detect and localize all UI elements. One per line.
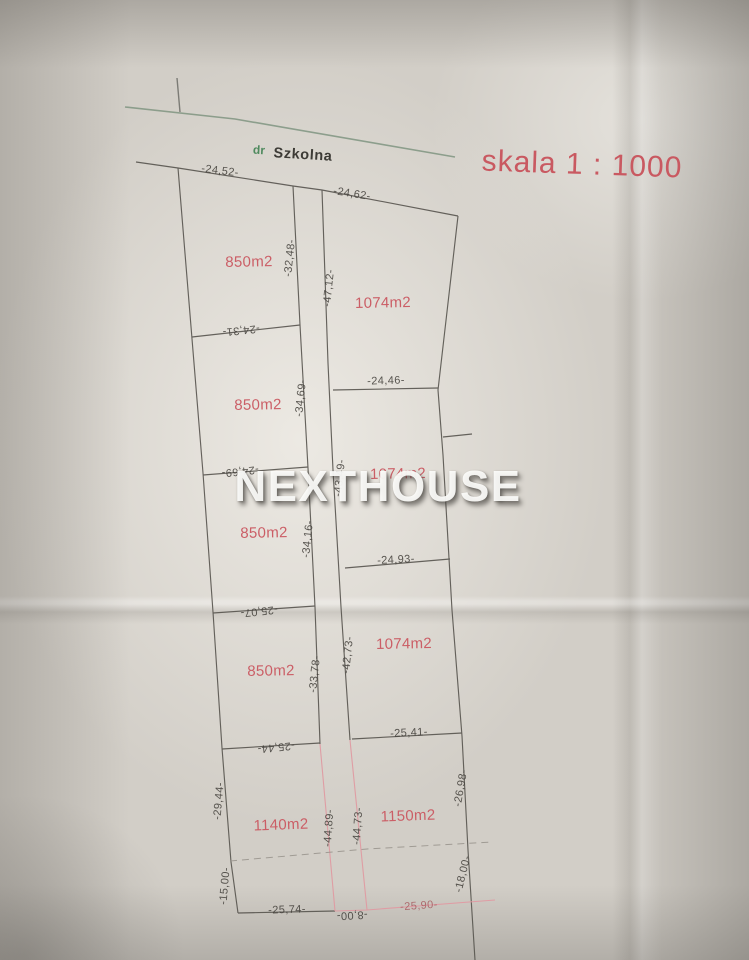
- plan-photo: dr Szkolna skala 1 : 1000 -24,52- -24,62…: [0, 0, 749, 960]
- parcel-area-label: 850m2: [240, 524, 288, 542]
- street-type-label: dr: [253, 143, 266, 158]
- parcel-area-label: 1074m2: [355, 294, 411, 312]
- parcel-area-label: 1074m2: [376, 635, 432, 653]
- nexthouse-watermark: NEXTHOUSE: [234, 462, 521, 512]
- map-scale-label: skala 1 : 1000: [481, 145, 683, 186]
- parcel-area-label: 1150m2: [380, 807, 435, 826]
- parcel-area-label: 850m2: [247, 662, 295, 680]
- parcel-width-measurement: -24,93-: [377, 553, 415, 567]
- parcel-area-label: 850m2: [225, 253, 273, 271]
- boundary-tick-top-left: [177, 78, 180, 112]
- designed-road-pink-lines: [320, 740, 495, 911]
- parcel-area-label: 850m2: [234, 396, 282, 414]
- parcel-area-label: 1140m2: [253, 816, 308, 835]
- parcel-width-measurement: -25,74-: [268, 903, 306, 916]
- road-width-measurement: -8,00-: [336, 908, 368, 922]
- parcel-width-measurement: -25,41-: [390, 726, 428, 740]
- parcel-boundaries: [136, 162, 475, 960]
- parcel-width-measurement: -24,46-: [367, 374, 405, 387]
